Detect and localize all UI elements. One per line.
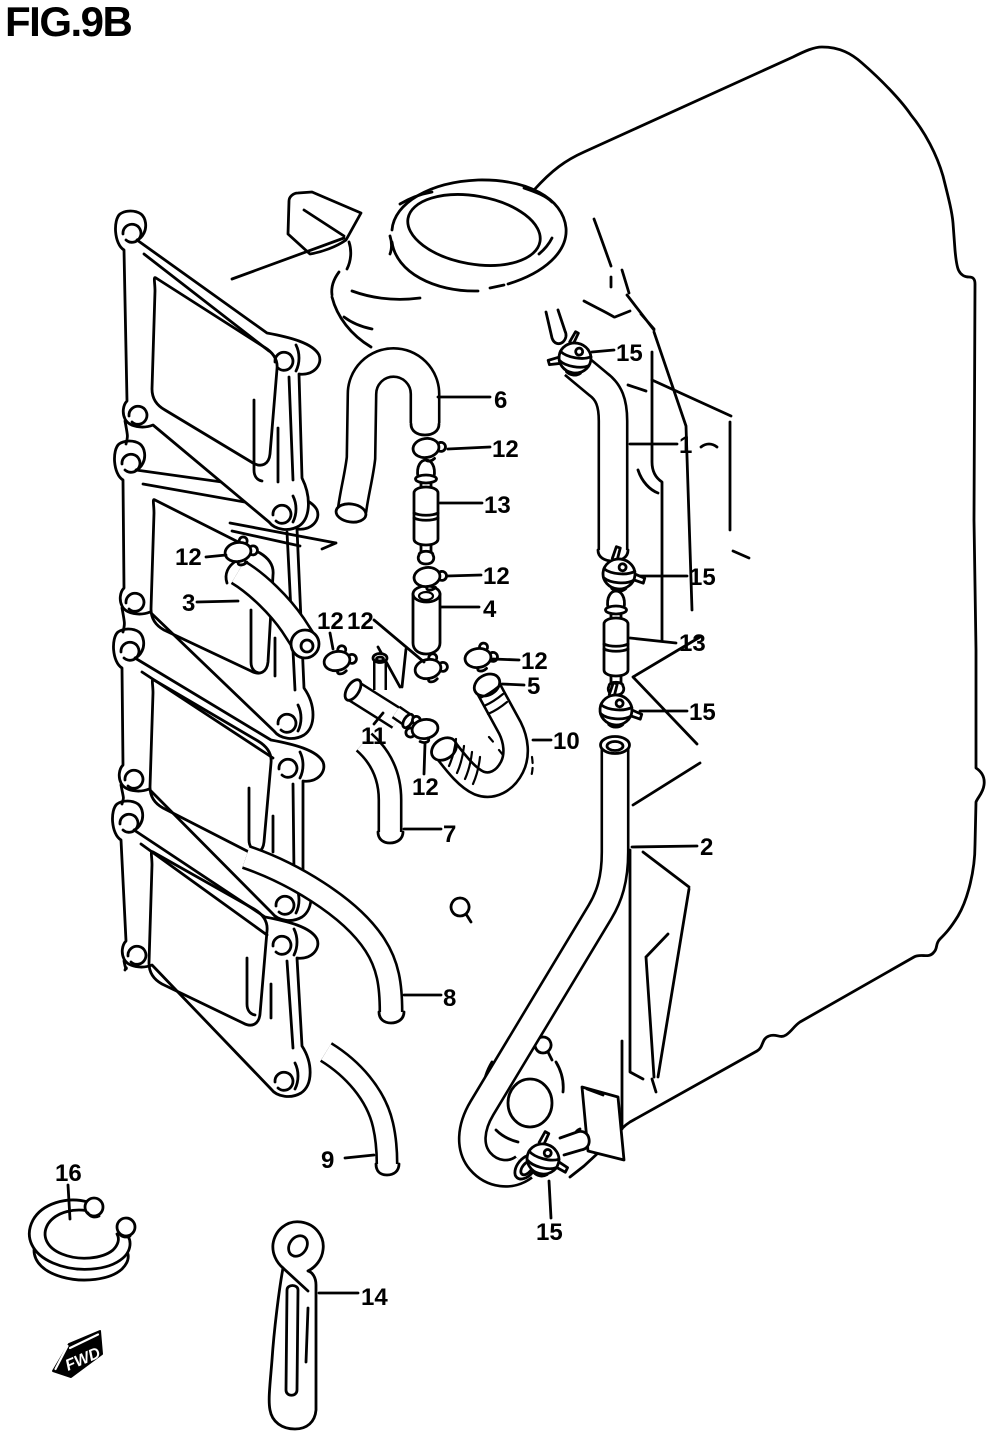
svg-text:13: 13 bbox=[679, 630, 706, 657]
svg-text:12: 12 bbox=[175, 544, 202, 571]
svg-text:11: 11 bbox=[361, 723, 386, 750]
svg-text:12: 12 bbox=[412, 774, 439, 801]
svg-text:9: 9 bbox=[321, 1147, 334, 1174]
svg-text:12: 12 bbox=[483, 563, 510, 590]
svg-text:2: 2 bbox=[700, 834, 713, 861]
svg-text:5: 5 bbox=[527, 673, 540, 700]
svg-text:3: 3 bbox=[182, 590, 195, 617]
svg-text:16: 16 bbox=[55, 1160, 82, 1187]
svg-text:12: 12 bbox=[317, 608, 344, 635]
svg-text:6: 6 bbox=[494, 387, 507, 414]
svg-text:8: 8 bbox=[443, 985, 456, 1012]
svg-text:14: 14 bbox=[361, 1284, 388, 1311]
svg-text:12: 12 bbox=[347, 608, 374, 635]
svg-text:13: 13 bbox=[484, 492, 511, 519]
svg-text:12: 12 bbox=[521, 648, 548, 675]
svg-text:7: 7 bbox=[443, 821, 456, 848]
svg-text:15: 15 bbox=[689, 699, 716, 726]
svg-text:15: 15 bbox=[689, 564, 716, 591]
svg-text:15: 15 bbox=[616, 340, 643, 367]
svg-text:15: 15 bbox=[536, 1219, 563, 1246]
svg-text:FIG.9B: FIG.9B bbox=[5, 0, 132, 45]
svg-text:1: 1 bbox=[679, 432, 692, 459]
svg-text:4: 4 bbox=[483, 596, 497, 623]
svg-text:12: 12 bbox=[492, 436, 519, 463]
svg-text:10: 10 bbox=[553, 728, 580, 755]
